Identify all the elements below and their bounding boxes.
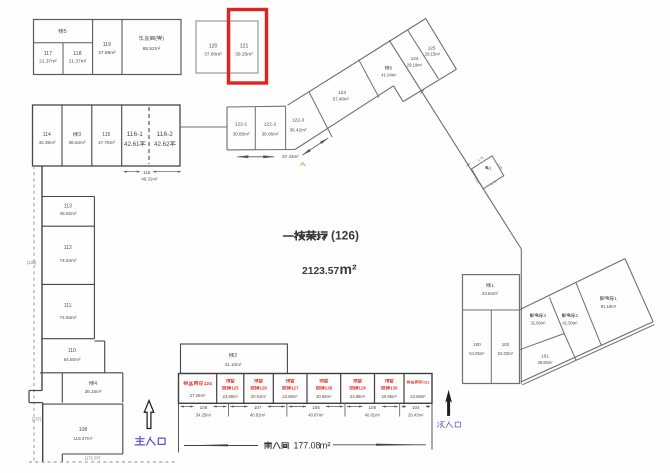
svg-text:100: 100 xyxy=(473,342,481,347)
svg-text:123: 123 xyxy=(338,90,346,96)
svg-text:23.68m²: 23.68m² xyxy=(410,394,426,399)
svg-text:125: 125 xyxy=(428,46,436,51)
svg-text:6: 6 xyxy=(390,66,393,71)
svg-text:107: 107 xyxy=(254,405,262,410)
svg-text:46.92m²: 46.92m² xyxy=(60,211,77,216)
svg-text:36.15m²: 36.15m² xyxy=(85,389,102,394)
svg-text:64.50m²: 64.50m² xyxy=(64,357,81,362)
svg-text:20.43m²: 20.43m² xyxy=(408,413,424,418)
svg-text:129: 129 xyxy=(359,386,367,391)
svg-text:20.86m²: 20.86m² xyxy=(316,394,332,399)
svg-text:30.85m²: 30.85m² xyxy=(233,132,250,137)
svg-text:23.68m²: 23.68m² xyxy=(223,394,239,399)
svg-text:104: 104 xyxy=(412,405,420,410)
svg-text:38.65m²: 38.65m² xyxy=(538,360,554,365)
svg-text:122-1: 122-1 xyxy=(235,122,248,128)
svg-text:41.04m²: 41.04m² xyxy=(381,73,397,78)
svg-text:m²: m² xyxy=(320,441,331,452)
svg-text:29.15m²: 29.15m² xyxy=(425,52,441,57)
svg-text:130: 130 xyxy=(390,386,398,391)
svg-text:122-3: 122-3 xyxy=(292,118,305,124)
svg-text:42.36m²: 42.36m² xyxy=(39,140,56,145)
svg-text:(135): (135) xyxy=(27,260,37,265)
svg-text:40.87m²: 40.87m² xyxy=(308,413,324,418)
svg-text:177.08: 177.08 xyxy=(294,441,321,451)
svg-text:114: 114 xyxy=(43,132,51,138)
svg-text:124: 124 xyxy=(204,381,212,387)
svg-text:37.89m²: 37.89m² xyxy=(98,50,116,56)
svg-text:41.50m²: 41.50m² xyxy=(563,321,579,326)
svg-text:2: 2 xyxy=(234,353,237,359)
svg-text:29.19m²: 29.19m² xyxy=(407,63,423,68)
svg-text:117: 117 xyxy=(44,51,52,57)
svg-text:91.16m²: 91.16m² xyxy=(601,304,617,309)
svg-text:42.61: 42.61 xyxy=(124,141,140,148)
svg-text:54.05m²: 54.05m² xyxy=(469,351,485,356)
svg-text:119.47m²: 119.47m² xyxy=(73,436,93,441)
svg-text:122-2: 122-2 xyxy=(264,122,277,128)
svg-text:1: 1 xyxy=(491,283,494,289)
svg-text:31.66m²: 31.66m² xyxy=(531,321,547,326)
svg-text:43.64m²: 43.64m² xyxy=(482,291,499,296)
svg-text:127: 127 xyxy=(291,386,299,391)
svg-text:128: 128 xyxy=(325,386,333,391)
svg-text:46.31m²: 46.31m² xyxy=(141,177,158,182)
svg-text:20.86m²: 20.86m² xyxy=(382,394,398,399)
svg-text:101: 101 xyxy=(541,354,549,359)
svg-text:(: ( xyxy=(155,36,157,42)
svg-text:37.80m²: 37.80m² xyxy=(204,52,222,58)
svg-text:34.25m²: 34.25m² xyxy=(196,413,212,418)
svg-text:110: 110 xyxy=(68,348,76,354)
svg-text:87.43m²: 87.43m² xyxy=(282,154,299,159)
svg-text:m²: m² xyxy=(340,261,357,277)
svg-text:42.62: 42.62 xyxy=(154,141,170,148)
svg-text:106: 106 xyxy=(312,405,320,410)
svg-text:21.37m²: 21.37m² xyxy=(69,59,87,65)
svg-text:): ) xyxy=(162,36,164,42)
svg-text:108: 108 xyxy=(79,427,88,433)
svg-text:20.91m²: 20.91m² xyxy=(251,394,267,399)
svg-text:125: 125 xyxy=(231,386,239,391)
svg-text:74.84m²: 74.84m² xyxy=(60,258,77,263)
svg-text:36.42m²: 36.42m² xyxy=(290,128,307,133)
svg-text:36.54m²: 36.54m² xyxy=(69,140,86,145)
svg-text:119: 119 xyxy=(103,42,111,48)
svg-text:65.52m²: 65.52m² xyxy=(143,46,161,52)
svg-text:(137): (137) xyxy=(32,417,42,422)
svg-text:126: 126 xyxy=(260,386,268,391)
svg-text:124: 124 xyxy=(411,56,419,61)
svg-text:21.37m²: 21.37m² xyxy=(39,59,57,65)
svg-text:131: 131 xyxy=(423,380,430,385)
svg-text:40.81m²: 40.81m² xyxy=(250,413,266,418)
svg-text:40.81m²: 40.81m² xyxy=(365,413,381,418)
svg-text:116-1: 116-1 xyxy=(127,131,144,138)
svg-text:111: 111 xyxy=(64,303,72,309)
svg-text:118: 118 xyxy=(73,51,81,57)
svg-text:1: 1 xyxy=(614,296,617,301)
svg-text:4: 4 xyxy=(94,381,97,387)
svg-text:121: 121 xyxy=(240,44,249,50)
svg-text:41.10m²: 41.10m² xyxy=(225,362,242,367)
svg-text:3: 3 xyxy=(78,132,81,138)
svg-text:105: 105 xyxy=(369,405,377,410)
svg-text:108: 108 xyxy=(200,405,208,410)
svg-text:74.84m²: 74.84m² xyxy=(60,315,77,320)
svg-text:118: 118 xyxy=(143,170,151,175)
svg-text:57.48m²: 57.48m² xyxy=(333,97,350,102)
svg-text:23.68m²: 23.68m² xyxy=(350,394,366,399)
svg-text:38.06m²: 38.06m² xyxy=(262,132,279,137)
svg-text:120: 120 xyxy=(209,44,218,50)
svg-text:23.86m²: 23.86m² xyxy=(282,394,298,399)
svg-text:(171.97): (171.97) xyxy=(85,456,101,461)
svg-text:116-2: 116-2 xyxy=(157,131,174,138)
svg-text:102: 102 xyxy=(502,342,510,347)
svg-text:113: 113 xyxy=(64,204,72,210)
svg-text:115: 115 xyxy=(102,132,110,138)
svg-text:39.25m²: 39.25m² xyxy=(235,52,253,58)
svg-text:2123.57: 2123.57 xyxy=(302,266,339,277)
svg-text:(126): (126) xyxy=(331,229,359,243)
svg-text:53.03m²: 53.03m² xyxy=(498,351,514,356)
svg-text:5: 5 xyxy=(64,29,67,35)
svg-text:27.26m²: 27.26m² xyxy=(190,393,206,398)
svg-text:47.76m²: 47.76m² xyxy=(98,140,115,145)
svg-text:112: 112 xyxy=(64,245,72,251)
